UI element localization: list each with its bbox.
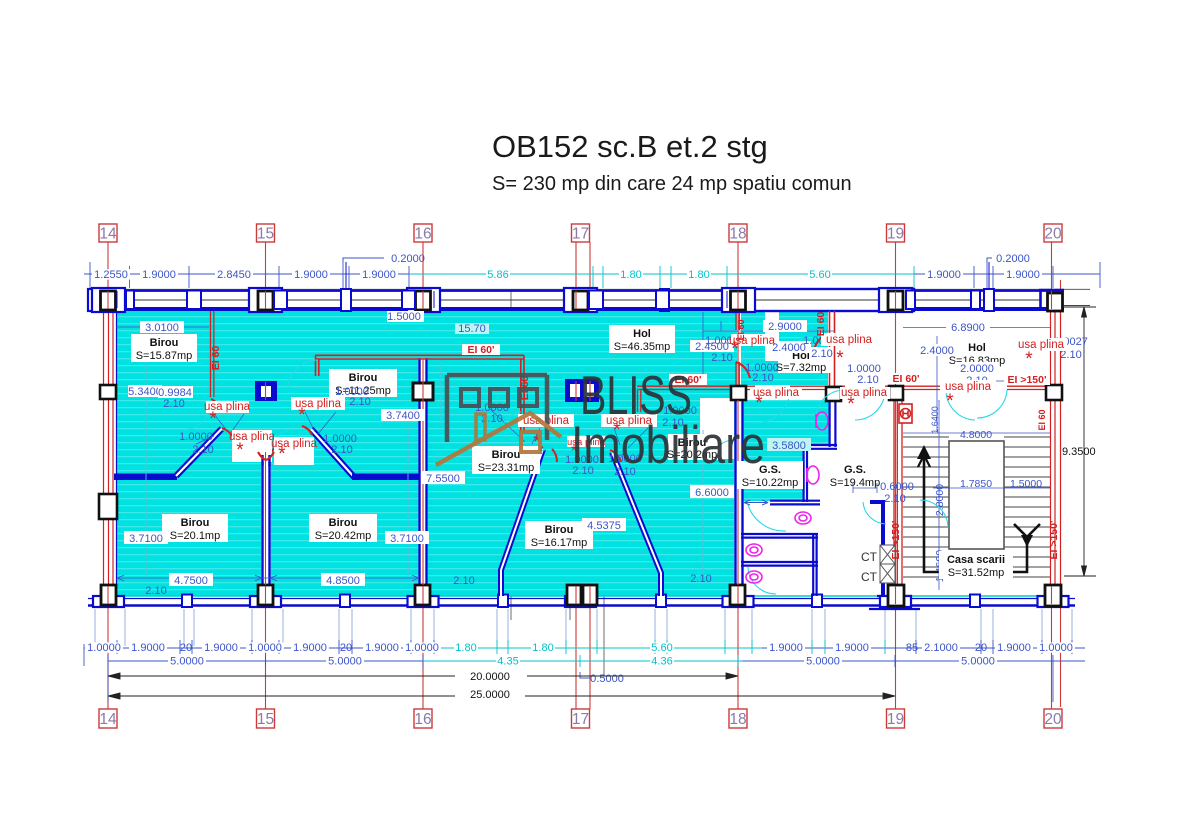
svg-text:2.10: 2.10 xyxy=(752,372,773,384)
svg-text:3.7400: 3.7400 xyxy=(386,410,420,422)
svg-text:1.7850: 1.7850 xyxy=(960,478,992,490)
svg-text:6.6000: 6.6000 xyxy=(695,487,729,499)
svg-text:14: 14 xyxy=(99,711,117,728)
svg-text:2.10: 2.10 xyxy=(690,573,711,585)
svg-text:5.60: 5.60 xyxy=(809,269,830,281)
svg-text:*: * xyxy=(298,405,306,426)
svg-text:2.10: 2.10 xyxy=(884,493,905,505)
svg-text:0.6000: 0.6000 xyxy=(880,481,914,493)
svg-text:Birou: Birou xyxy=(492,449,521,461)
svg-text:14: 14 xyxy=(99,226,117,243)
svg-text:15: 15 xyxy=(257,226,274,243)
svg-text:Hol: Hol xyxy=(633,328,651,340)
svg-text:1.9000: 1.9000 xyxy=(204,642,238,654)
svg-text:*: * xyxy=(847,394,855,415)
svg-text:18: 18 xyxy=(729,711,746,728)
svg-text:4.7500: 4.7500 xyxy=(174,575,208,587)
svg-text:19: 19 xyxy=(887,226,904,243)
svg-text:2.10: 2.10 xyxy=(811,348,832,360)
svg-text:2.10: 2.10 xyxy=(331,444,352,456)
svg-text:5.0000: 5.0000 xyxy=(961,656,995,668)
svg-text:20.0000: 20.0000 xyxy=(470,671,510,683)
svg-text:2.8000: 2.8000 xyxy=(934,484,946,516)
svg-text:1.5000: 1.5000 xyxy=(1010,478,1042,490)
svg-text:1.9000: 1.9000 xyxy=(131,642,165,654)
svg-text:1.9000: 1.9000 xyxy=(294,269,328,281)
svg-text:Birou: Birou xyxy=(545,524,574,536)
svg-text:3.7100: 3.7100 xyxy=(390,533,424,545)
svg-text:Birou: Birou xyxy=(150,337,179,349)
svg-text:2.4000: 2.4000 xyxy=(772,342,806,354)
svg-text:CT: CT xyxy=(861,550,878,564)
svg-text:S= 230 mp din care 24 mp spat: S= 230 mp din care 24 mp spatiu comun xyxy=(492,173,852,195)
svg-text:2.10: 2.10 xyxy=(857,374,878,386)
svg-text:2.10: 2.10 xyxy=(163,398,184,410)
svg-text:15.70: 15.70 xyxy=(458,323,486,335)
svg-text:EI 60': EI 60' xyxy=(467,344,494,356)
svg-text:G.S.: G.S. xyxy=(844,464,866,476)
svg-text:*: * xyxy=(836,348,844,369)
svg-text:4.36: 4.36 xyxy=(651,656,672,668)
svg-text:1.9000: 1.9000 xyxy=(142,269,176,281)
svg-text:2.9000: 2.9000 xyxy=(768,321,802,333)
svg-text:S=16.17mp: S=16.17mp xyxy=(531,537,588,549)
svg-text:Birou: Birou xyxy=(349,372,378,384)
svg-text:20: 20 xyxy=(1044,711,1062,728)
svg-text:2.10: 2.10 xyxy=(349,396,370,408)
svg-text:3.5800: 3.5800 xyxy=(772,440,806,452)
svg-text:1.0000: 1.0000 xyxy=(179,431,213,443)
svg-text:*: * xyxy=(209,409,217,430)
svg-text:25.0000: 25.0000 xyxy=(470,689,510,701)
svg-text:1.5000: 1.5000 xyxy=(387,311,421,323)
svg-text:1.6400: 1.6400 xyxy=(930,406,940,434)
svg-text:2.10: 2.10 xyxy=(192,444,213,456)
svg-text:9.3500: 9.3500 xyxy=(1062,446,1096,458)
svg-text:5.60: 5.60 xyxy=(651,642,672,654)
svg-text:2.0000: 2.0000 xyxy=(960,363,994,375)
svg-text:1.9000: 1.9000 xyxy=(293,642,327,654)
svg-text:EI >150': EI >150' xyxy=(1008,374,1047,386)
svg-text:1.0000: 1.0000 xyxy=(248,642,282,654)
svg-text:17: 17 xyxy=(572,226,589,243)
svg-text:4.8000: 4.8000 xyxy=(960,429,992,441)
svg-text:*: * xyxy=(278,444,286,465)
svg-text:S=7.32mp: S=7.32mp xyxy=(776,362,826,374)
svg-text:usa plina: usa plina xyxy=(826,334,873,346)
svg-text:2.1000: 2.1000 xyxy=(924,642,958,654)
svg-text:*: * xyxy=(1025,349,1033,370)
svg-text:1.80: 1.80 xyxy=(532,642,553,654)
svg-text:1.9000: 1.9000 xyxy=(769,642,803,654)
svg-text:EI 60: EI 60 xyxy=(815,312,827,337)
svg-text:7.5500: 7.5500 xyxy=(426,473,460,485)
svg-text:20: 20 xyxy=(1044,226,1062,243)
svg-text:CT: CT xyxy=(861,570,878,584)
svg-text:5.0000: 5.0000 xyxy=(806,656,840,668)
svg-text:EI 60': EI 60' xyxy=(892,373,919,385)
svg-text:EI 60: EI 60 xyxy=(210,346,222,371)
svg-text:1.9000: 1.9000 xyxy=(1006,269,1040,281)
svg-text:1.9000: 1.9000 xyxy=(997,642,1031,654)
svg-text:OB152 sc.B et.2 stg: OB152 sc.B et.2 stg xyxy=(492,129,768,164)
svg-text:2.10: 2.10 xyxy=(711,352,732,364)
svg-text:5.86: 5.86 xyxy=(487,269,508,281)
svg-text:EI >150': EI >150' xyxy=(1048,521,1060,560)
svg-text:1.80: 1.80 xyxy=(620,269,641,281)
svg-text:EI 60: EI 60 xyxy=(1037,409,1047,430)
svg-text:1.9000: 1.9000 xyxy=(927,269,961,281)
svg-text:4.8500: 4.8500 xyxy=(326,575,360,587)
svg-text:*: * xyxy=(946,391,954,412)
svg-text:16: 16 xyxy=(414,226,431,243)
svg-text:19: 19 xyxy=(887,711,904,728)
svg-text:S=15.87mp: S=15.87mp xyxy=(136,350,193,362)
svg-text:6.8900: 6.8900 xyxy=(951,322,985,334)
svg-text:16: 16 xyxy=(414,711,431,728)
svg-text:3.0100: 3.0100 xyxy=(145,322,179,334)
svg-text:4.5375: 4.5375 xyxy=(587,520,621,532)
svg-text:5.0000: 5.0000 xyxy=(328,656,362,668)
svg-text:S=19.4mp: S=19.4mp xyxy=(830,477,880,489)
svg-text:S=31.52mp: S=31.52mp xyxy=(948,567,1005,579)
svg-text:0.2000: 0.2000 xyxy=(391,253,425,265)
svg-text:2.10: 2.10 xyxy=(453,575,474,587)
svg-text:17: 17 xyxy=(572,711,589,728)
svg-text:*: * xyxy=(236,440,244,461)
svg-text:1.9000: 1.9000 xyxy=(835,642,869,654)
svg-text:0.2000: 0.2000 xyxy=(996,253,1030,265)
svg-text:EI >150': EI >150' xyxy=(890,521,902,560)
svg-text:Casa scarii: Casa scarii xyxy=(947,554,1005,566)
svg-text:S=23.31mp: S=23.31mp xyxy=(478,462,535,474)
svg-text:*: * xyxy=(755,393,763,414)
svg-text:18: 18 xyxy=(729,226,746,243)
svg-text:Birou: Birou xyxy=(181,517,210,529)
svg-text:15: 15 xyxy=(257,711,274,728)
svg-text:3.7100: 3.7100 xyxy=(129,533,163,545)
svg-text:2.8450: 2.8450 xyxy=(217,269,251,281)
svg-text:4.35: 4.35 xyxy=(497,656,518,668)
svg-text:S=10.22mp: S=10.22mp xyxy=(742,477,799,489)
svg-text:Imobiliare: Imobiliare xyxy=(571,416,765,475)
svg-text:85: 85 xyxy=(906,642,918,654)
svg-text:2.4000: 2.4000 xyxy=(920,345,954,357)
svg-text:20: 20 xyxy=(975,642,987,654)
svg-text:0.5000: 0.5000 xyxy=(590,673,624,685)
svg-text:20: 20 xyxy=(340,642,352,654)
svg-text:5.0000: 5.0000 xyxy=(170,656,204,668)
svg-text:5.3400: 5.3400 xyxy=(128,386,162,398)
svg-text:20: 20 xyxy=(180,642,192,654)
svg-text:Hol: Hol xyxy=(968,342,986,354)
svg-text:Birou: Birou xyxy=(329,517,358,529)
svg-text:1.0000: 1.0000 xyxy=(405,642,439,654)
svg-text:1.2550: 1.2550 xyxy=(94,269,128,281)
svg-text:1.0000: 1.0000 xyxy=(87,642,121,654)
svg-text:S=20.42mp: S=20.42mp xyxy=(315,530,372,542)
svg-text:1.9000: 1.9000 xyxy=(362,269,396,281)
svg-text:2.10: 2.10 xyxy=(145,585,166,597)
svg-text:EI 60: EI 60 xyxy=(736,319,746,340)
svg-text:1.80: 1.80 xyxy=(455,642,476,654)
svg-text:1.0000: 1.0000 xyxy=(1039,642,1073,654)
svg-text:1.80: 1.80 xyxy=(688,269,709,281)
svg-text:S=20.1mp: S=20.1mp xyxy=(170,530,220,542)
svg-text:S=46.35mp: S=46.35mp xyxy=(614,341,671,353)
svg-text:1.9000: 1.9000 xyxy=(365,642,399,654)
